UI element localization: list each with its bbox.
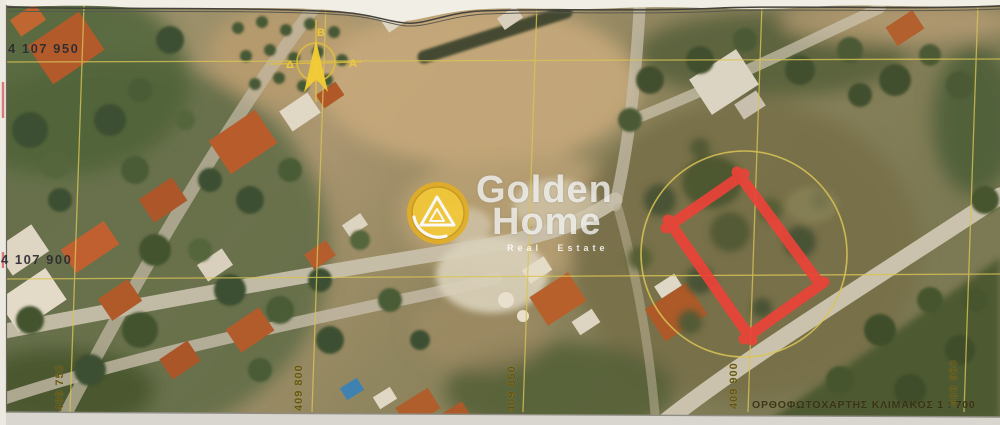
northing-label-middle: 4 107 900 <box>1 252 72 267</box>
watermark-line2: Home <box>492 203 613 241</box>
easting-label-409850: 409 850 <box>506 365 518 412</box>
northing-label-top: 4 107 950 <box>8 41 79 56</box>
easting-label-409800: 409 800 <box>293 364 305 411</box>
paper-edge-left <box>0 0 6 425</box>
orthophoto-map-page: Β Δ Α 4 107 950 4 10 <box>0 0 1000 425</box>
easting-label-409750: 409 750 <box>54 364 66 411</box>
watermark-tagline: Real Estate <box>507 244 613 253</box>
compass-east-label: Α <box>349 58 357 70</box>
watermark-golden-home: Golden Home Real Estate <box>476 171 613 253</box>
map-caption: ΟΡΘΟΦΩΤΟΧΑΡΤΗΣ ΚΛΙΜΑΚΟΣ 1 : 700 <box>752 399 976 411</box>
golden-home-logo-icon <box>406 181 470 245</box>
compass-north-label: Β <box>317 27 325 39</box>
compass-west-label: Δ <box>286 59 294 71</box>
easting-label-409900: 409 900 <box>728 362 740 409</box>
